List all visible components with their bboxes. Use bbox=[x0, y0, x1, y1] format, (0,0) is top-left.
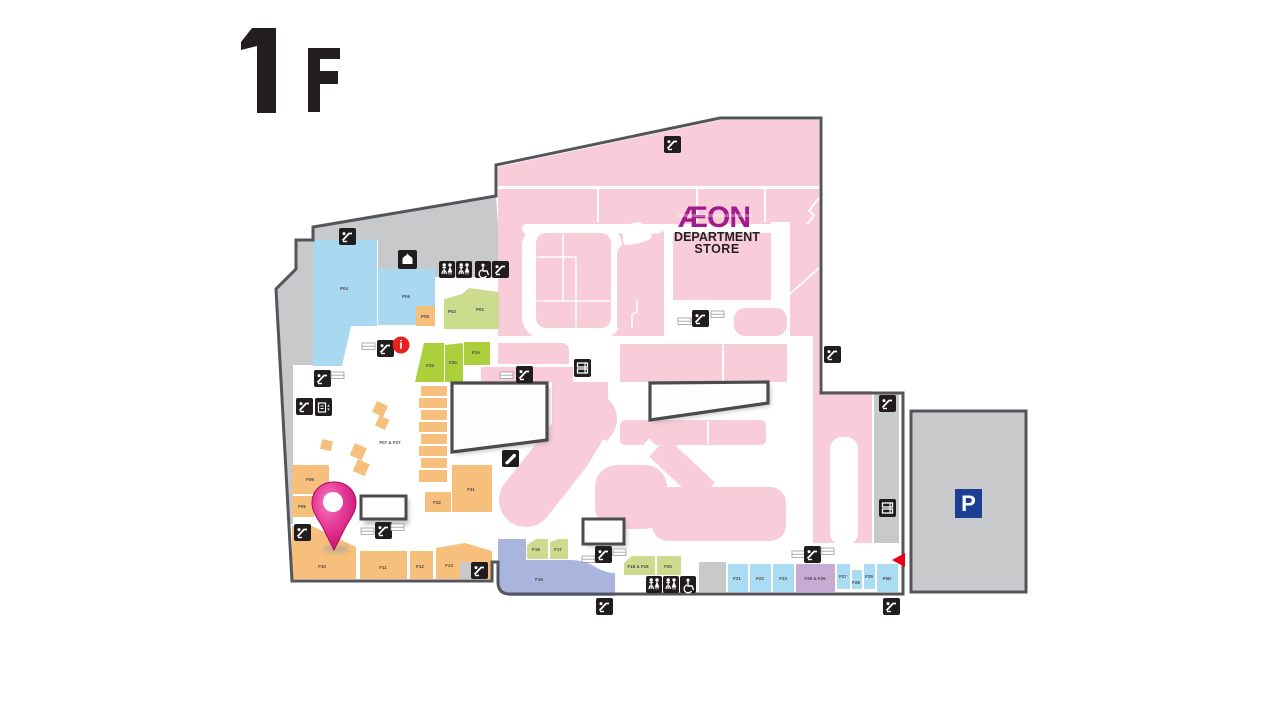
svg-text:F12: F12 bbox=[416, 564, 424, 569]
svg-text:F16: F16 bbox=[535, 577, 543, 582]
svg-text:P02: P02 bbox=[448, 309, 457, 314]
svg-text:F06: F06 bbox=[306, 477, 314, 482]
svg-text:F10: F10 bbox=[318, 564, 326, 569]
svg-text:P06: P06 bbox=[402, 294, 411, 299]
svg-text:F27: F27 bbox=[839, 574, 847, 579]
svg-text:P04: P04 bbox=[340, 286, 349, 291]
svg-text:F21: F21 bbox=[733, 576, 741, 581]
svg-text:i: i bbox=[399, 338, 402, 352]
svg-text:F33: F33 bbox=[426, 363, 434, 368]
svg-text:P05: P05 bbox=[421, 314, 430, 319]
svg-text:F13: F13 bbox=[445, 563, 453, 568]
svg-text:F11: F11 bbox=[379, 565, 387, 570]
svg-text:P01: P01 bbox=[476, 307, 485, 312]
svg-text:F30: F30 bbox=[449, 360, 457, 365]
svg-text:F18 & F19: F18 & F19 bbox=[627, 564, 649, 569]
svg-text:F05: F05 bbox=[298, 504, 306, 509]
svg-text:F25 & F26: F25 & F26 bbox=[804, 576, 826, 581]
svg-text:F31: F31 bbox=[467, 487, 475, 492]
svg-text:F07 & F27: F07 & F27 bbox=[379, 440, 401, 445]
svg-text:F5D: F5D bbox=[883, 576, 892, 581]
svg-text:F28: F28 bbox=[852, 580, 860, 585]
svg-text:F20: F20 bbox=[664, 564, 672, 569]
svg-text:STORE: STORE bbox=[694, 242, 739, 256]
svg-text:F17: F17 bbox=[554, 547, 562, 552]
svg-text:F16: F16 bbox=[532, 547, 540, 552]
svg-text:F23: F23 bbox=[779, 576, 787, 581]
svg-text:F3A: F3A bbox=[472, 350, 481, 355]
svg-text:F29: F29 bbox=[865, 574, 873, 579]
svg-text:F32: F32 bbox=[433, 500, 441, 505]
svg-text:F22: F22 bbox=[756, 576, 764, 581]
svg-text:P: P bbox=[961, 491, 976, 516]
